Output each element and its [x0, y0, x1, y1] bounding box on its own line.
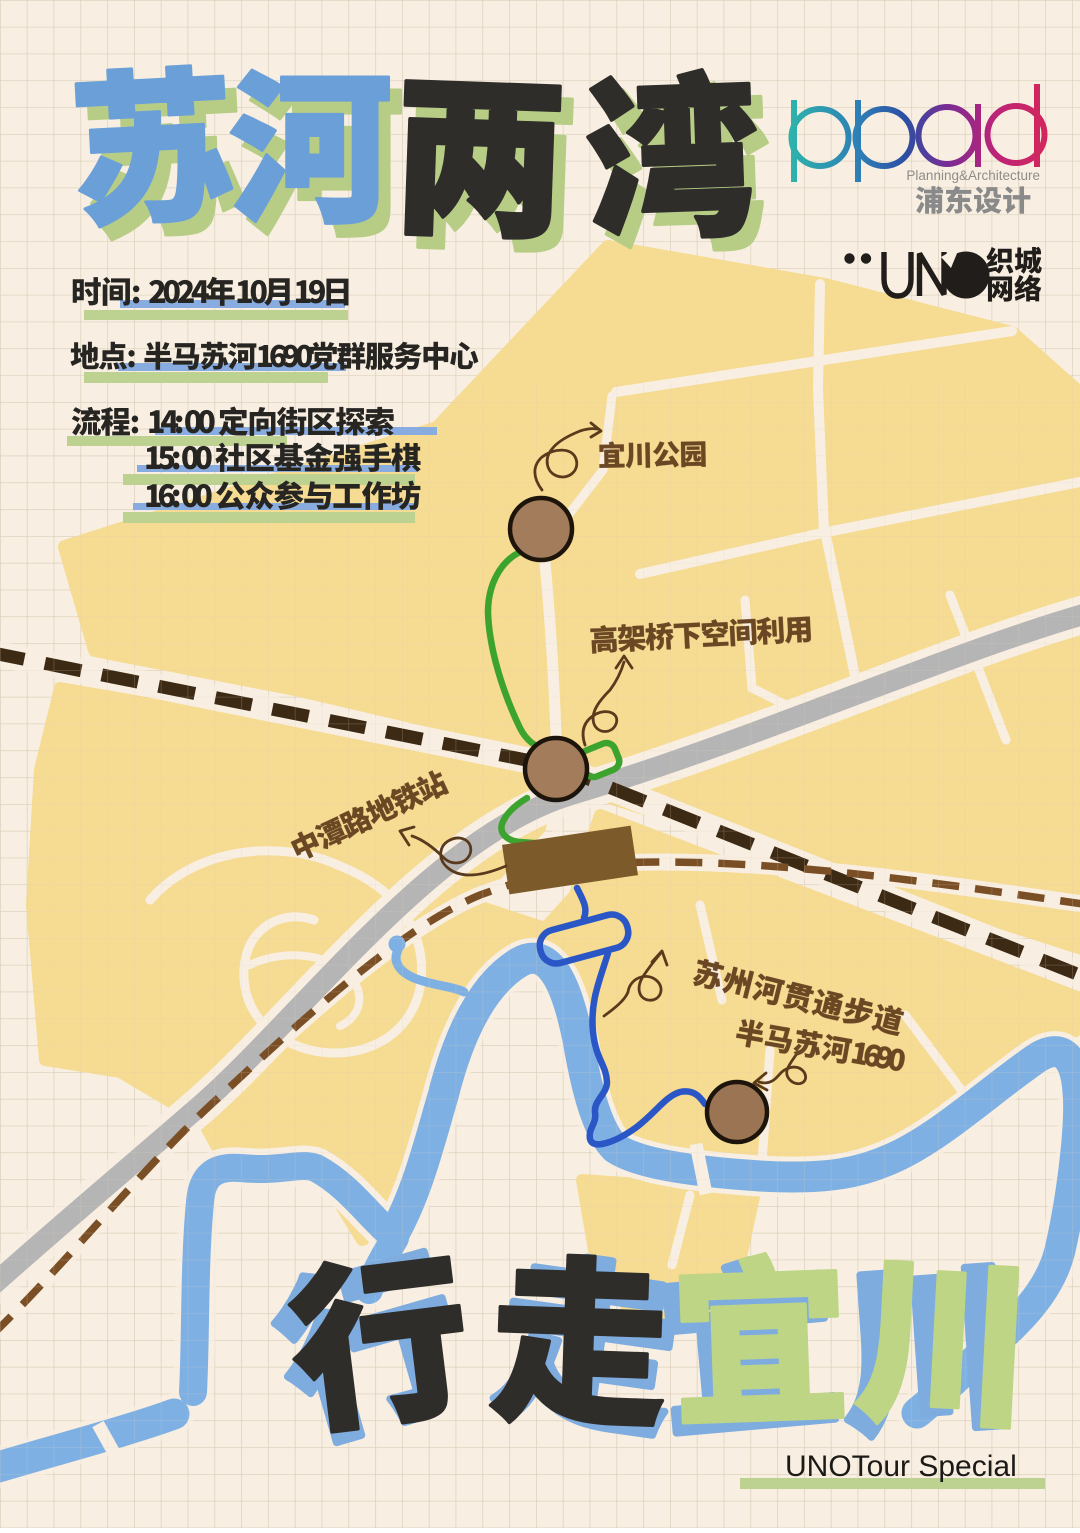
svg-text:Planning&Architecture: Planning&Architecture — [906, 168, 1040, 183]
svg-text:UNOTour Special: UNOTour Special — [785, 1450, 1017, 1483]
